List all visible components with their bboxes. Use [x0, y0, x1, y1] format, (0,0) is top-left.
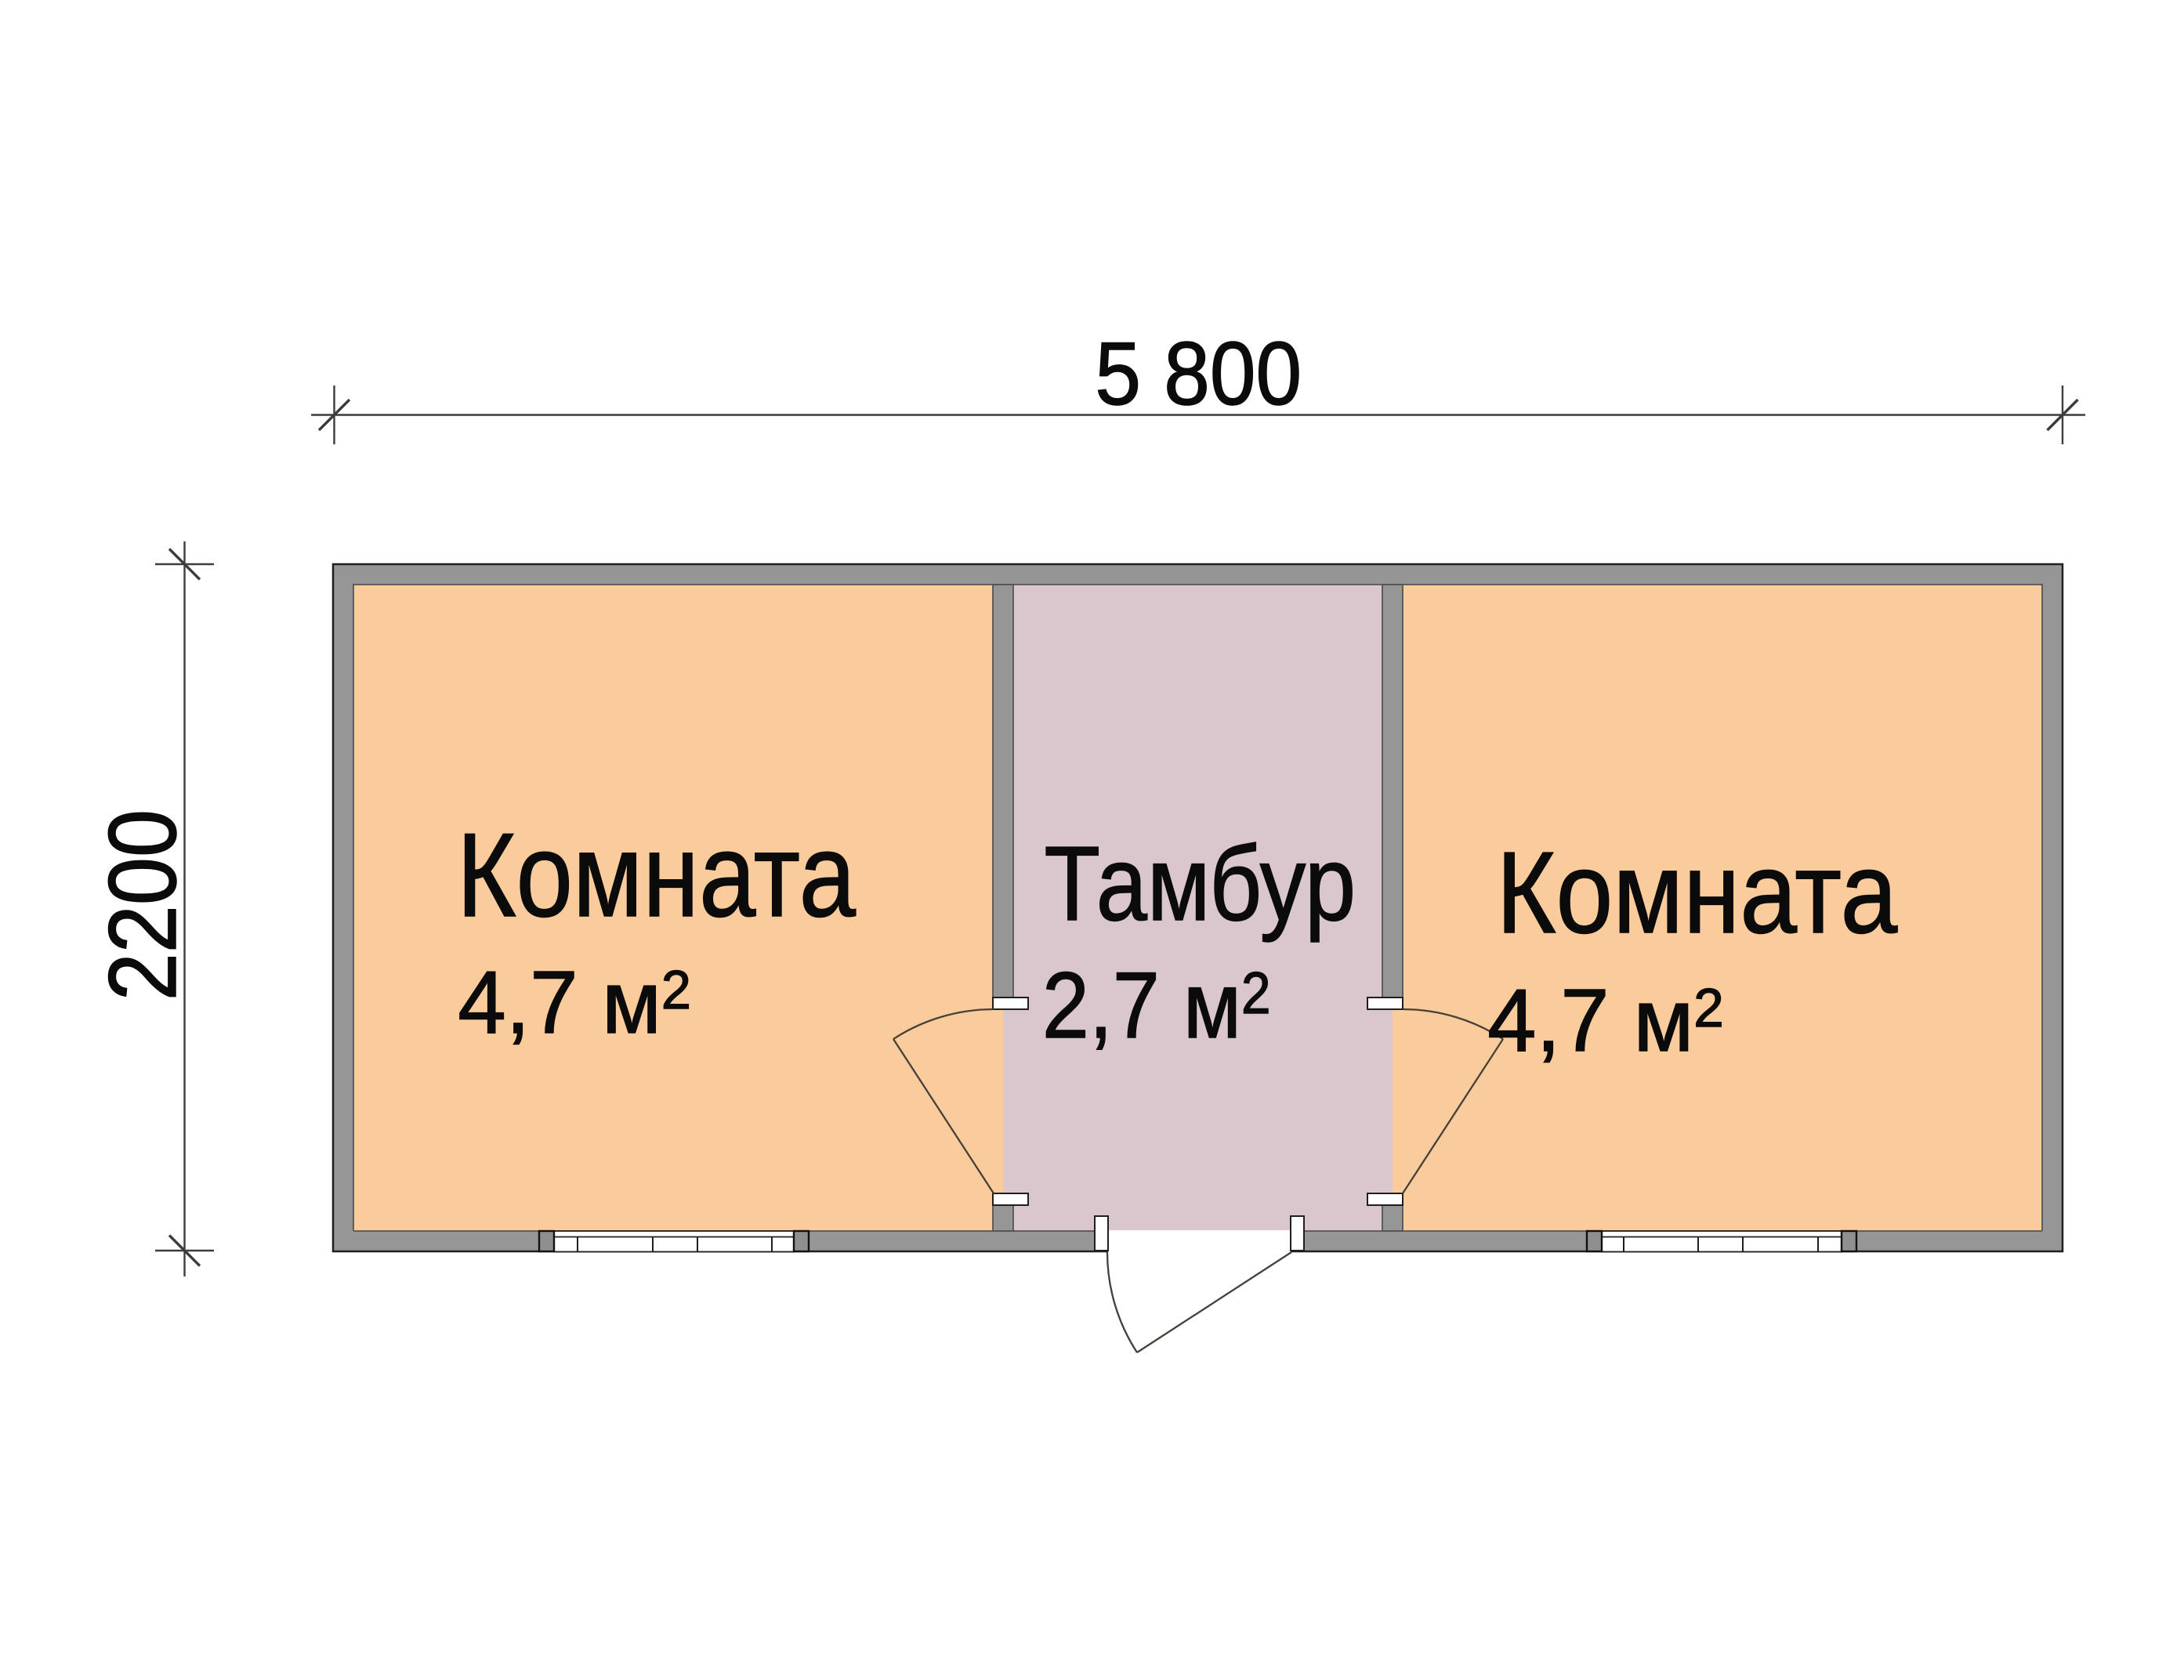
svg-text:5 800: 5 800 — [1095, 324, 1302, 424]
svg-text:Комната: Комната — [1496, 827, 1897, 957]
svg-text:4,7 м2: 4,7 м2 — [1487, 970, 1723, 1070]
svg-text:Тамбур: Тамбур — [1044, 824, 1356, 943]
svg-text:2,7 м2: 2,7 м2 — [1042, 954, 1271, 1059]
svg-text:4,7 м2: 4,7 м2 — [458, 953, 690, 1052]
svg-text:2200: 2200 — [88, 809, 196, 1001]
svg-text:Комната: Комната — [457, 808, 856, 941]
